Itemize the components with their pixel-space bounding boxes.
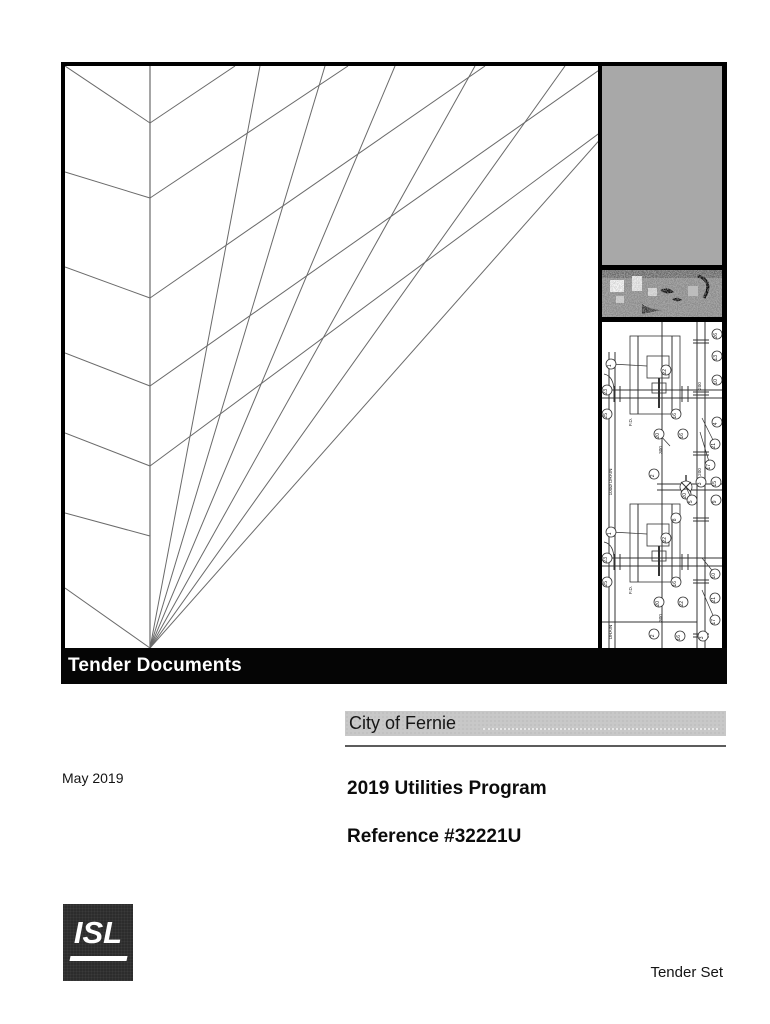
svg-text:20: 20 [655, 601, 661, 607]
svg-text:10: 10 [711, 573, 717, 579]
svg-text:5: 5 [688, 500, 694, 503]
svg-text:F.D.: F.D. [628, 418, 633, 426]
svg-text:2: 2 [650, 474, 656, 477]
svg-text:1: 1 [607, 364, 613, 367]
cover-collage: 300200200F.D.F.D.100Ø DRAINDRAIN30012325… [61, 62, 727, 684]
site-photo [602, 270, 722, 317]
date-label: May 2019 [62, 770, 123, 786]
project-title: 2019 Utilities Program [347, 778, 547, 800]
right-image-column: 300200200F.D.F.D.100Ø DRAINDRAIN30012325… [602, 66, 722, 648]
svg-text:300: 300 [658, 614, 663, 622]
svg-text:16: 16 [672, 413, 678, 419]
client-name: City of Fernie [345, 713, 456, 734]
svg-text:17: 17 [711, 619, 717, 625]
svg-text:200: 200 [697, 468, 702, 476]
svg-text:100Ø DRAIN: 100Ø DRAIN [608, 469, 613, 496]
svg-text:1: 1 [607, 532, 613, 535]
tender-set-label: Tender Set [650, 964, 723, 981]
svg-text:21: 21 [711, 597, 717, 603]
svg-text:16: 16 [672, 581, 678, 587]
line-art-panel [65, 66, 598, 648]
client-name-bar: City of Fernie [345, 711, 726, 736]
svg-text:20: 20 [655, 433, 661, 439]
dotted-leader [483, 728, 718, 730]
svg-text:23: 23 [603, 557, 609, 563]
svg-text:22: 22 [662, 369, 668, 375]
piping-drawing: 300200200F.D.F.D.100Ø DRAINDRAIN30012325… [602, 322, 722, 648]
svg-text:21: 21 [711, 443, 717, 449]
svg-text:25: 25 [603, 413, 609, 419]
svg-text:10: 10 [713, 379, 719, 385]
svg-text:22: 22 [679, 601, 685, 607]
isl-logo-text: ISL [63, 917, 133, 948]
gray-placeholder-box [602, 66, 722, 265]
svg-text:3: 3 [699, 636, 705, 639]
svg-text:25: 25 [603, 581, 609, 587]
site-photo-graphic [602, 270, 722, 317]
svg-text:8: 8 [672, 518, 678, 521]
isl-logo-underline [69, 956, 127, 961]
svg-text:F.D.: F.D. [628, 586, 633, 594]
piping-drawing-graphic: 300200200F.D.F.D.100Ø DRAINDRAIN30012325… [602, 322, 722, 648]
svg-text:DRAIN: DRAIN [608, 625, 613, 639]
tender-documents-banner: Tender Documents [61, 648, 727, 684]
svg-text:23: 23 [603, 389, 609, 395]
svg-text:2: 2 [650, 634, 656, 637]
svg-text:16: 16 [676, 635, 682, 641]
svg-text:9: 9 [712, 500, 718, 503]
svg-text:4: 4 [713, 422, 719, 425]
isl-logo: ISL [63, 904, 133, 981]
svg-text:16: 16 [679, 433, 685, 439]
svg-text:200: 200 [697, 382, 702, 390]
string-art-graphic [65, 66, 598, 648]
svg-text:17: 17 [706, 464, 712, 470]
divider-rule [345, 745, 726, 747]
svg-text:3: 3 [697, 482, 703, 485]
svg-text:26: 26 [713, 333, 719, 339]
svg-text:15: 15 [712, 481, 718, 487]
banner-label: Tender Documents [61, 655, 242, 677]
svg-text:300: 300 [658, 446, 663, 454]
svg-text:22: 22 [662, 537, 668, 543]
reference-number: Reference #32221U [347, 826, 521, 848]
svg-text:13: 13 [713, 355, 719, 361]
svg-text:20: 20 [682, 493, 688, 499]
tender-cover-page: { "cover": { "banner": "Tender Documents… [0, 0, 770, 1024]
